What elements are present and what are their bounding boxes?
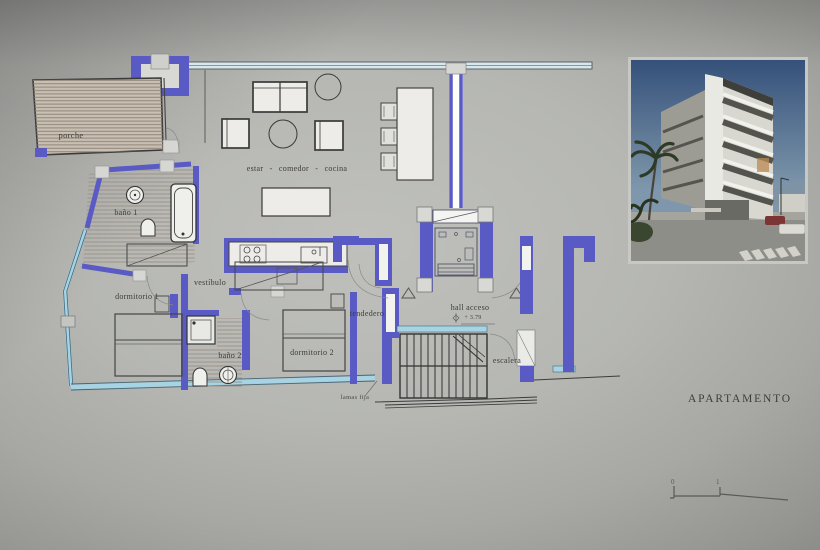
scale-bar-line xyxy=(670,486,788,500)
distant-building xyxy=(779,194,805,212)
room-label-bano1: baño 1 xyxy=(114,208,137,217)
photo-background: porche estar - comedor - cocina baño 1 d… xyxy=(0,0,820,550)
bathroom2 xyxy=(185,310,250,388)
right-walls xyxy=(517,236,620,382)
left-glazing-wall xyxy=(61,230,87,387)
bathroom1 xyxy=(83,160,199,266)
car-red xyxy=(765,216,785,225)
room-label-tendedero: tendedero xyxy=(350,309,384,318)
building-render-photo xyxy=(628,57,808,264)
floor-plan-drawing xyxy=(25,48,625,428)
scale-tick-1: 1 xyxy=(716,478,720,486)
room-label-dormitorio1: dormitorio 1 xyxy=(115,292,159,301)
room-label-estar-comedor-cocina: estar - comedor - cocina xyxy=(247,164,348,173)
room-label-escalera: escalera xyxy=(493,356,521,365)
bedroom1 xyxy=(82,244,188,390)
kitchen-island xyxy=(381,88,433,180)
room-label-dormitorio2: dormitorio 2 xyxy=(290,348,334,357)
room-label-porche: porche xyxy=(59,130,84,140)
floor-plan: porche estar - comedor - cocina baño 1 d… xyxy=(25,48,625,428)
annotation-lamas-fija: lamas fija xyxy=(341,394,369,401)
living-room-furniture xyxy=(222,74,343,216)
building-render-drawing xyxy=(631,60,805,261)
level-mark: + 3.79 xyxy=(464,315,481,321)
scale-bar: 0 1 xyxy=(666,474,796,504)
staircase xyxy=(375,326,537,408)
top-window-band xyxy=(175,62,592,69)
plan-title: APARTAMENTO xyxy=(688,393,792,405)
room-label-vestibulo: vestíbulo xyxy=(194,278,226,287)
elevator xyxy=(348,63,527,324)
room-label-hall-acceso: hall acceso xyxy=(451,303,490,312)
room-label-bano2: baño 2 xyxy=(218,351,241,360)
car-white xyxy=(779,224,805,234)
scale-tick-0: 0 xyxy=(671,478,675,486)
